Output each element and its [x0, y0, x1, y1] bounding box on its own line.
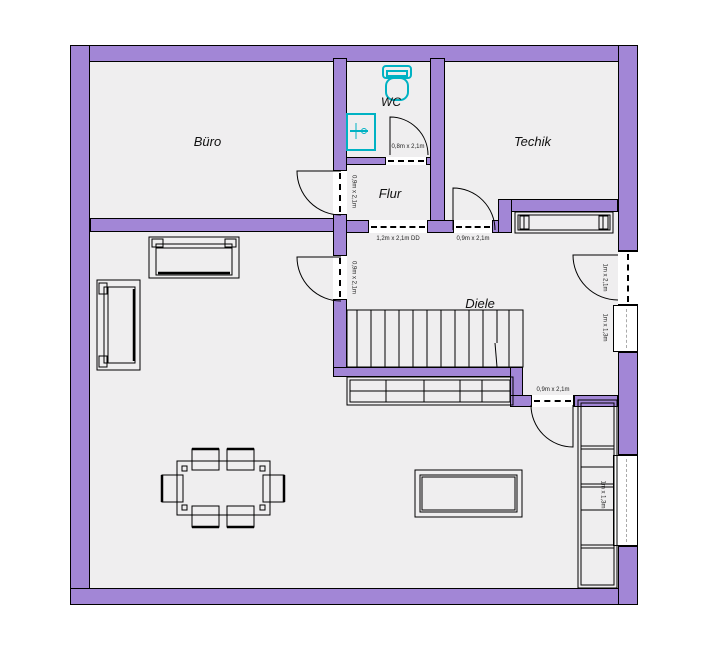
floor-plan: Büro WC Flur Techik Diele 0,8m x 2,1m 1,…	[0, 0, 724, 660]
door-dash	[388, 160, 424, 162]
room-label-flur: Flur	[370, 186, 410, 201]
dim-right-door: 1m x 2,1m	[601, 258, 608, 298]
wall-buero-bottom	[90, 218, 334, 232]
wall-techik-step	[498, 199, 512, 233]
dim-right-window: 1m x 1,3m	[601, 308, 608, 348]
window-centerline	[626, 459, 627, 542]
door-dash	[339, 258, 341, 297]
door-opening-living[interactable]	[333, 255, 347, 300]
wall-exterior-left	[70, 45, 90, 605]
dim-shelf-window: 1m x 1,3m	[599, 475, 606, 515]
window-centerline	[626, 309, 627, 348]
door-opening-wc[interactable]	[385, 157, 427, 165]
dim-techik-door: 0,9m x 2,1m	[451, 236, 495, 243]
door-opening-right[interactable]	[618, 251, 638, 305]
dim-diele-door: 0,9m x 2,1m	[531, 387, 575, 394]
wall-techik-bottom	[498, 199, 618, 212]
wall-under-stairs	[333, 367, 523, 377]
wall-exterior-top	[70, 45, 638, 62]
door-dash	[371, 226, 425, 228]
wall-diele-south-left	[510, 395, 532, 407]
room-label-buero: Büro	[180, 134, 235, 149]
door-opening-buero[interactable]	[333, 170, 347, 215]
room-label-wc: WC	[375, 95, 407, 109]
wall-diele-south-right	[574, 395, 618, 407]
wall-central	[333, 58, 347, 375]
window-right-lower[interactable]	[613, 455, 638, 546]
window-right-upper[interactable]	[613, 305, 638, 352]
door-dash	[339, 173, 341, 212]
door-dash	[456, 226, 490, 228]
dim-living-door: 0,9m x 2,1m	[350, 256, 357, 300]
wall-exterior-bottom	[70, 588, 638, 605]
door-opening-techik[interactable]	[453, 220, 493, 233]
door-opening-flur-double[interactable]	[368, 220, 428, 233]
wall-wc-techik-divider	[430, 58, 445, 232]
door-dash	[534, 400, 571, 402]
room-label-diele: Diele	[456, 296, 504, 311]
door-opening-diele[interactable]	[531, 395, 574, 407]
door-dash	[627, 254, 629, 302]
room-label-techik: Techik	[505, 134, 560, 149]
wall-exterior-right-upper	[618, 45, 638, 251]
dim-buero-door: 0,9m x 2,1m	[350, 170, 357, 214]
wall-exterior-right-mid	[618, 352, 638, 455]
wall-exterior-right-lower	[618, 546, 638, 605]
dim-flur-double-door: 1,2m x 2,1m DD	[368, 236, 428, 243]
dim-wc-door: 0,8m x 2,1m	[386, 144, 430, 151]
